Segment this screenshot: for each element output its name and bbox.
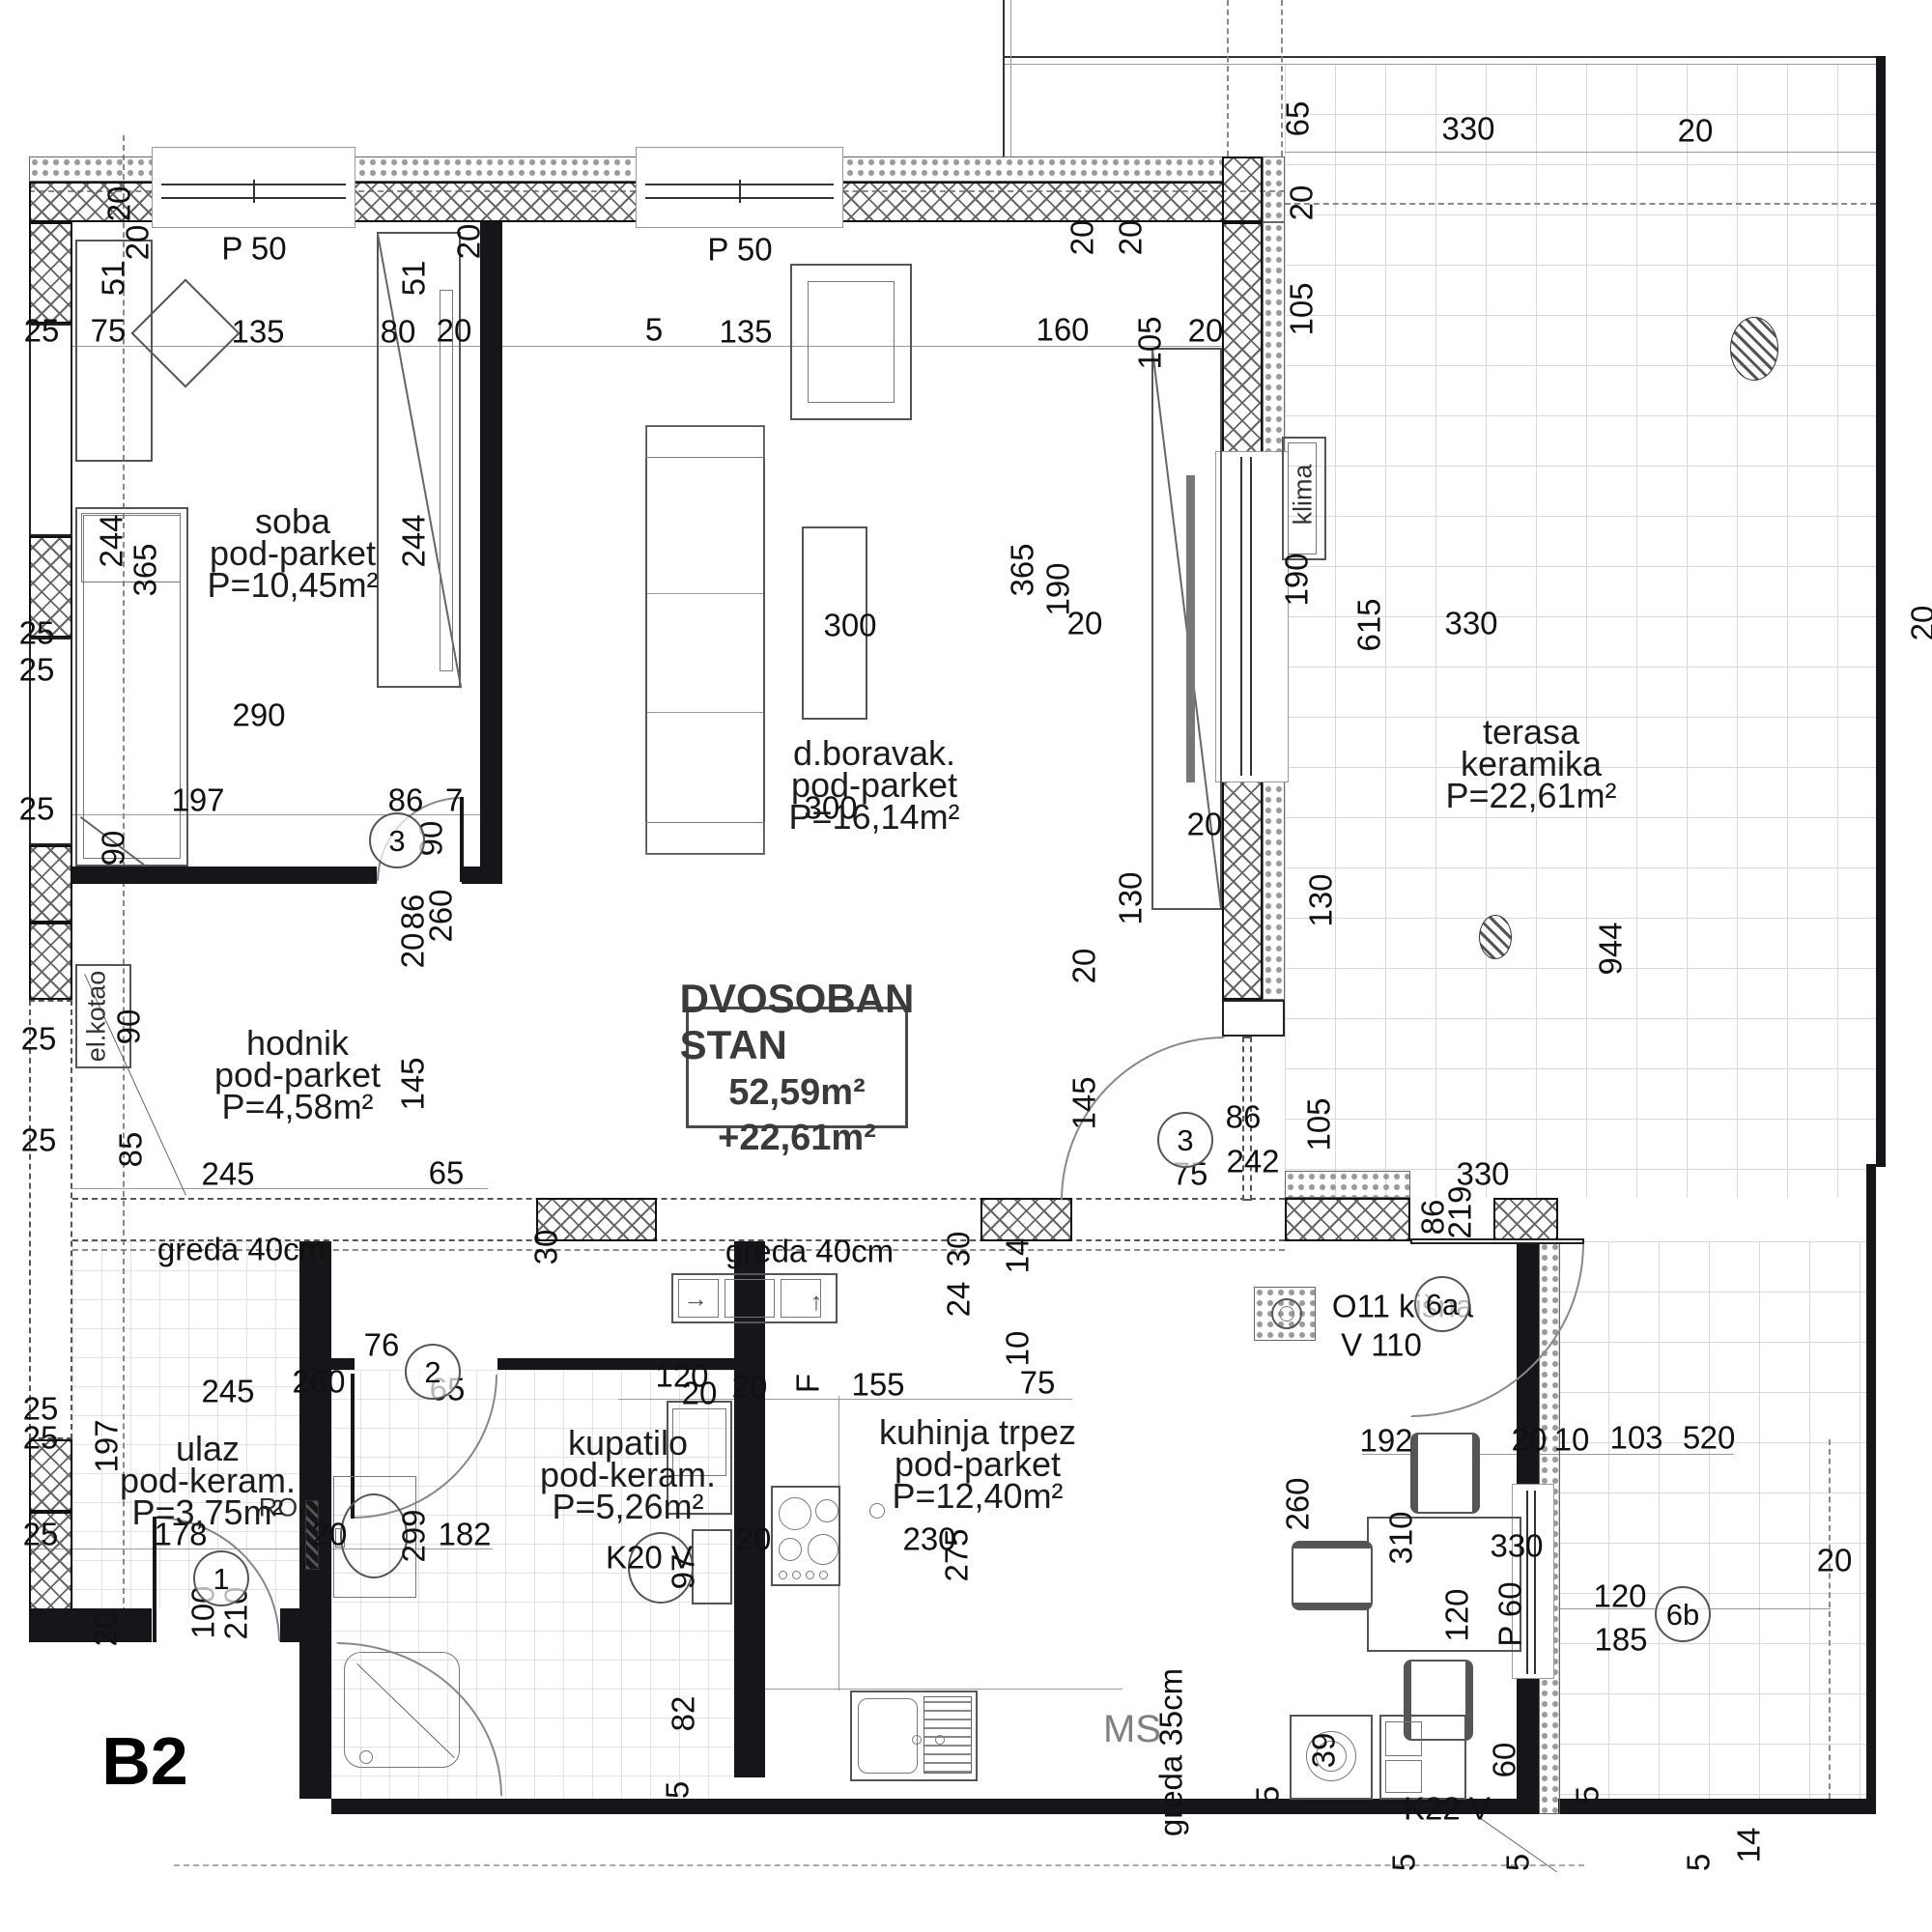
room-label-soba: P=10,45m² bbox=[207, 568, 378, 603]
dimension-label: 120 bbox=[1593, 1580, 1646, 1612]
dimension-label: 300 bbox=[823, 610, 876, 641]
dimension-label: 20 bbox=[90, 1611, 122, 1647]
dimension-label: 20 bbox=[1187, 809, 1223, 840]
room-label-kuhinja: P=12,40m² bbox=[892, 1479, 1063, 1514]
dimension-label: 260 bbox=[292, 1366, 345, 1398]
dimension-label: 20 bbox=[732, 1371, 768, 1403]
dimension-label: 155 bbox=[851, 1369, 904, 1401]
dimension-label: 299 bbox=[398, 1509, 430, 1562]
dimension-label: 65 bbox=[1282, 101, 1314, 137]
wall-hatched-left-1 bbox=[29, 222, 72, 324]
terrace-drain-1 bbox=[1730, 317, 1778, 381]
dimension-label: 20 bbox=[1068, 949, 1100, 984]
dimension-label: 86 bbox=[388, 784, 424, 816]
wall-insulation-divider-2 bbox=[1263, 773, 1285, 1000]
shower-drain bbox=[359, 1750, 373, 1764]
dimension-label: 90 bbox=[98, 831, 129, 867]
dimension-label: 5 bbox=[1252, 1786, 1284, 1804]
door-leaf-loggia-6a bbox=[1410, 1238, 1584, 1244]
wall-insulation-top-3 bbox=[834, 156, 1224, 182]
dimension-label: 105 bbox=[1286, 282, 1318, 335]
wall-insulation-divider-corner bbox=[1263, 156, 1285, 222]
wall-insulation-6a bbox=[1285, 1171, 1410, 1198]
dimension-label: 5 bbox=[1572, 1786, 1604, 1804]
stove-burner-4 bbox=[808, 1534, 838, 1565]
stove-burner-3 bbox=[779, 1538, 802, 1561]
dimension-label: 160 bbox=[1036, 314, 1089, 346]
dimension-label: 219 bbox=[1444, 1185, 1476, 1238]
sofa-armrest-bottom bbox=[645, 822, 765, 855]
dimension-label: 51 bbox=[98, 261, 129, 297]
annotation-label: MS bbox=[1103, 1710, 1161, 1748]
dimension-label: 145 bbox=[1068, 1076, 1100, 1129]
dimension-label: 20 bbox=[1188, 315, 1224, 347]
dimension-label: 30 bbox=[943, 1232, 975, 1267]
dimension-label: 290 bbox=[232, 699, 285, 731]
title-line-1: DVOSOBAN STAN bbox=[680, 976, 915, 1068]
stove-knob-1 bbox=[779, 1571, 787, 1579]
wall-insulation-top-2 bbox=[346, 156, 645, 182]
dimension-label: 244 bbox=[96, 514, 128, 567]
dimension-label: 5 bbox=[1502, 1854, 1534, 1871]
dimension-label: 130 bbox=[1305, 873, 1337, 926]
dimension-label: 105 bbox=[1134, 316, 1166, 369]
upper-floor-line bbox=[1003, 0, 1005, 156]
sofa-cushion-line-2 bbox=[647, 712, 763, 713]
kitchen-sink-basin bbox=[858, 1698, 918, 1774]
dimension-label: 135 bbox=[231, 316, 284, 348]
wall-loggia-right bbox=[1866, 1164, 1876, 1814]
stove-knob-3 bbox=[806, 1571, 814, 1579]
dimension-label: 39 bbox=[1308, 1733, 1340, 1769]
wall-hatched-top-2 bbox=[346, 182, 645, 222]
tv-screen bbox=[1186, 475, 1195, 782]
stove-knob-4 bbox=[819, 1571, 828, 1579]
dimension-label: 25 bbox=[19, 617, 55, 649]
reference-circle: 3 bbox=[369, 812, 425, 868]
stove-burner-1 bbox=[779, 1497, 811, 1530]
wall-hatched-divider-2 bbox=[1222, 773, 1263, 1000]
wall-outlet-circle bbox=[869, 1503, 885, 1519]
dimension-label: 20 bbox=[1817, 1545, 1853, 1577]
dimension-label: 135 bbox=[719, 316, 772, 348]
dimension-label: 25 bbox=[19, 654, 55, 686]
dimension-label: 51 bbox=[398, 261, 430, 297]
annotation-label: greda 40cm bbox=[157, 1234, 326, 1265]
dining-chair-top bbox=[1410, 1433, 1480, 1514]
wall-insulation-top-1 bbox=[29, 156, 161, 182]
sofa-cushion-line-1 bbox=[647, 593, 763, 594]
dimension-label: 944 bbox=[1595, 922, 1627, 975]
dimension-label: 14 bbox=[1002, 1238, 1034, 1274]
wall-hatched-divider-1 bbox=[1222, 222, 1263, 459]
dimension-label: 75 bbox=[1020, 1367, 1056, 1399]
title-line-2: 52,59m² bbox=[728, 1072, 866, 1114]
kitchen-tap-2 bbox=[935, 1735, 945, 1745]
reference-circle: 1 bbox=[193, 1550, 249, 1606]
title-block: DVOSOBAN STAN 52,59m² +22,61m² bbox=[686, 1007, 908, 1128]
annotation-label: greda 40cm bbox=[725, 1236, 894, 1267]
wall-soba-living-partition bbox=[480, 222, 502, 884]
dimension-label: 245 bbox=[201, 1158, 254, 1190]
vent-shaft-right bbox=[980, 1198, 1072, 1241]
dimension-label: 197 bbox=[91, 1419, 123, 1472]
dimension-label: 310 bbox=[1385, 1511, 1417, 1564]
dimension-label: 120 bbox=[1441, 1588, 1473, 1641]
dimension-label: 190 bbox=[1281, 553, 1313, 606]
dimension-label: 25 bbox=[19, 793, 55, 825]
annotation-label: P 50 bbox=[221, 233, 286, 265]
terrace-drain-2 bbox=[1479, 915, 1512, 959]
dimension-label: 75 bbox=[91, 315, 127, 347]
kitchen-sink-drainer bbox=[923, 1696, 972, 1774]
wall-plain-divider-foot bbox=[1222, 1000, 1285, 1037]
dimension-label: 7 bbox=[445, 784, 463, 816]
dimension-label: 185 bbox=[1594, 1624, 1647, 1656]
dimension-label: 5 bbox=[662, 1781, 694, 1799]
dimension-label: 14 bbox=[1733, 1828, 1765, 1863]
armchair-seat bbox=[808, 281, 895, 403]
room-label-kupatilo: P=5,26m² bbox=[552, 1490, 703, 1524]
dimension-label: 86 bbox=[1226, 1101, 1262, 1133]
base-cabinet-drawer-1 bbox=[1385, 1721, 1422, 1756]
dimension-label: 20 bbox=[1678, 115, 1714, 147]
dimension-label: 330 bbox=[1441, 113, 1494, 145]
annotation-label: ↑ bbox=[810, 1289, 823, 1314]
dimension-label: 5 bbox=[1388, 1854, 1420, 1871]
dimension-label: 244 bbox=[398, 514, 430, 567]
wall-hatched-left-4 bbox=[29, 923, 72, 1000]
reference-circle: 3 bbox=[1157, 1112, 1213, 1168]
dimension-label: 197 bbox=[171, 784, 224, 816]
dining-chair-left bbox=[1292, 1541, 1373, 1610]
annotation-label: → bbox=[683, 1286, 708, 1311]
dimension-label: 10 bbox=[1554, 1424, 1590, 1456]
room-label-terasa: P=22,61m² bbox=[1445, 779, 1616, 813]
dimension-label: 20 bbox=[1067, 608, 1103, 639]
dimension-label: 76 bbox=[364, 1329, 400, 1361]
dimension-label: 20 bbox=[103, 186, 135, 222]
loggia-tile-floor bbox=[1558, 1241, 1866, 1799]
wall-ulaz-bottom-stub bbox=[280, 1608, 299, 1642]
reference-circle: 6b bbox=[1655, 1586, 1711, 1642]
reference-circle: 6a bbox=[1414, 1276, 1470, 1332]
annotation-label: K22 V bbox=[1404, 1793, 1491, 1825]
dimension-label: 25 bbox=[23, 1519, 59, 1550]
slab-edge-dashed bbox=[174, 1864, 1584, 1866]
wall-bottom-main bbox=[331, 1799, 1539, 1814]
dimension-label: 20 bbox=[736, 1523, 772, 1555]
dimension-label: 20 bbox=[1286, 185, 1318, 221]
dimension-label: 260 bbox=[1282, 1477, 1314, 1530]
terrace-railing-right bbox=[1876, 56, 1886, 1167]
wall-insulation-divider-1 bbox=[1263, 222, 1285, 459]
room-label-dnevni-boravak: P=16,14m² bbox=[788, 800, 959, 835]
window-p50-living-mullion bbox=[739, 180, 741, 203]
dimension-label: 245 bbox=[201, 1376, 254, 1407]
dimension-label: 130 bbox=[1115, 871, 1147, 924]
axis-line-loggia bbox=[1829, 1439, 1831, 1799]
vent-box-2 bbox=[724, 1279, 775, 1318]
dimension-label: 20 bbox=[1066, 220, 1098, 256]
annotation-label: F bbox=[792, 1374, 824, 1393]
dimension-label: 20 bbox=[453, 224, 485, 260]
annotation-label: V 110 bbox=[1341, 1329, 1422, 1361]
dimension-label: 85 bbox=[115, 1132, 147, 1168]
wall-hatched-left-3 bbox=[29, 845, 72, 923]
sofa-armrest-top bbox=[645, 425, 765, 458]
roof-edge-line bbox=[1005, 56, 1876, 58]
dimension-label: 105 bbox=[1303, 1097, 1335, 1151]
wall-hatched-6a-right bbox=[1493, 1198, 1558, 1241]
dimension-label: 30 bbox=[530, 1230, 562, 1265]
dimension-label: 5 bbox=[1683, 1854, 1715, 1871]
dimension-label: 20 bbox=[1700, 1422, 1736, 1454]
axis-line-terrace bbox=[1285, 203, 1876, 205]
dimension-label: 20 bbox=[122, 225, 154, 261]
dimension-label: 20 bbox=[1907, 606, 1932, 641]
dimension-label: 275 bbox=[941, 1528, 973, 1581]
roof-edge-line-2 bbox=[1005, 64, 1876, 65]
dimension-label: 60 bbox=[1489, 1743, 1520, 1778]
annotation-label: el.kotao bbox=[84, 971, 110, 1063]
window-6b-glass bbox=[1526, 1491, 1536, 1674]
wall-hatched-divider-top-corner bbox=[1222, 156, 1263, 222]
base-cabinet-drawer-2 bbox=[1385, 1760, 1422, 1793]
dimension-label: 192 bbox=[1359, 1425, 1412, 1457]
annotation-label: P 60 bbox=[1494, 1581, 1526, 1646]
sofa bbox=[645, 425, 765, 855]
wall-bottom-loggia bbox=[1558, 1799, 1874, 1814]
window-190-terrace-glass bbox=[1240, 457, 1252, 776]
wall-dashed-left-lower bbox=[29, 1000, 72, 1439]
rain-pipe-circle-inner bbox=[1279, 1306, 1294, 1321]
wall-soba-bottom-pier bbox=[462, 867, 481, 884]
upper-floor-dashed-left bbox=[1227, 0, 1229, 156]
dimension-label: 25 bbox=[23, 1422, 59, 1454]
dimension-label: 24 bbox=[943, 1282, 975, 1318]
dimension-label: 10 bbox=[1002, 1331, 1034, 1367]
upper-floor-line-2 bbox=[1010, 0, 1011, 156]
dimension-label: 20 bbox=[437, 315, 472, 347]
dimension-label: 20 bbox=[1512, 1424, 1548, 1456]
kitchen-bottom-counter-edge bbox=[765, 1689, 1122, 1690]
wall-hatched-top-3 bbox=[834, 182, 1224, 222]
annotation-label: K20 V bbox=[606, 1542, 693, 1574]
dimension-label: 5 bbox=[1683, 1422, 1700, 1454]
window-p50-soba-mullion bbox=[253, 180, 255, 203]
wall-soba-bottom bbox=[72, 867, 377, 884]
dimension-label: 90 bbox=[113, 1009, 145, 1045]
title-line-3: +22,61m² bbox=[718, 1118, 876, 1159]
dimension-label: 20 bbox=[1115, 220, 1147, 256]
reference-circle: 2 bbox=[405, 1344, 461, 1400]
dimension-label: 20 bbox=[682, 1378, 718, 1409]
dimension-label: 20 bbox=[312, 1519, 348, 1550]
dim-line-terrace-top bbox=[1285, 152, 1879, 153]
annotation-label: klima bbox=[1291, 464, 1317, 525]
dimension-label: 65 bbox=[429, 1157, 465, 1189]
dimension-label: 5 bbox=[645, 314, 663, 346]
dimension-label: 615 bbox=[1353, 598, 1385, 651]
dimension-label: 82 bbox=[668, 1696, 699, 1732]
annotation-label: P 50 bbox=[707, 234, 772, 266]
dimension-label: 80 bbox=[381, 316, 416, 348]
dimension-label: 145 bbox=[397, 1057, 429, 1110]
dimension-label: 365 bbox=[1007, 543, 1038, 596]
dimension-label: 25 bbox=[21, 1023, 57, 1055]
dimension-label: 330 bbox=[1490, 1530, 1543, 1562]
dimension-label: 103 bbox=[1609, 1422, 1662, 1454]
annotation-label: greda 35cm bbox=[1155, 1668, 1187, 1836]
kitchen-tap-1 bbox=[912, 1735, 922, 1745]
window-190-terrace-sill bbox=[1215, 451, 1289, 782]
dimension-label: 25 bbox=[24, 315, 60, 347]
dimension-label: 365 bbox=[129, 543, 161, 596]
wall-plain-left-1 bbox=[29, 324, 72, 536]
dimension-label: 20 bbox=[397, 933, 429, 969]
dimension-label: 182 bbox=[438, 1519, 491, 1550]
dimension-label: 25 bbox=[21, 1124, 57, 1156]
wall-hatched-6a-left bbox=[1285, 1198, 1410, 1241]
floor-plan-canvas: DVOSOBAN STAN 52,59m² +22,61m² B2 653302… bbox=[0, 0, 1932, 1932]
plan-code-label: B2 bbox=[101, 1722, 187, 1800]
room-label-ulaz: P=3,75m² bbox=[131, 1495, 283, 1530]
wall-hatched-top-1 bbox=[29, 182, 161, 222]
dim-line-hodnik-1223 bbox=[72, 1188, 488, 1189]
stove-burner-2 bbox=[815, 1499, 838, 1522]
room-label-hodnik: P=4,58m² bbox=[221, 1090, 373, 1124]
dimension-label: 242 bbox=[1226, 1146, 1279, 1178]
dimension-label: 330 bbox=[1444, 608, 1497, 639]
stove-knob-2 bbox=[792, 1571, 801, 1579]
